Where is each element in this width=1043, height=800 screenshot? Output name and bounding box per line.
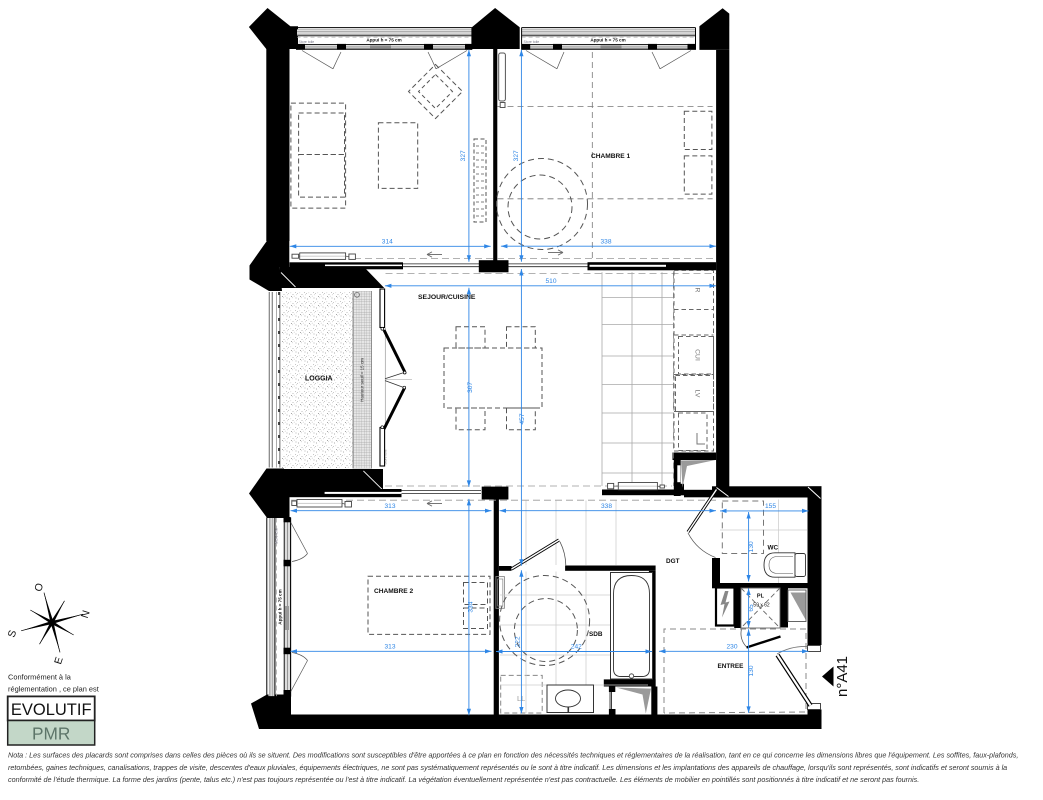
svg-text:SDB: SDB — [589, 631, 603, 638]
svg-text:222: 222 — [515, 636, 522, 647]
svg-text:510: 510 — [545, 278, 556, 285]
svg-text:Appui h = 75 cm: Appui h = 75 cm — [590, 38, 625, 43]
svg-text:327: 327 — [513, 150, 520, 161]
svg-text:338: 338 — [600, 238, 611, 245]
svg-text:Nota : Les surfaces des placar: Nota : Les surfaces des placards sont co… — [8, 751, 1018, 760]
svg-text:Appui h = 75 cm: Appui h = 75 cm — [278, 589, 283, 624]
svg-text:230: 230 — [726, 644, 737, 651]
svg-text:N: N — [79, 609, 93, 620]
svg-text:Hauteur seuil ≈ 15 cm: Hauteur seuil ≈ 15 cm — [360, 358, 365, 402]
svg-text:307: 307 — [467, 382, 474, 393]
svg-text:LOGGIA: LOGGIA — [305, 375, 333, 382]
svg-text:314: 314 — [382, 239, 393, 246]
svg-text:CHAMBRE 2: CHAMBRE 2 — [374, 588, 414, 595]
svg-text:ENTREE: ENTREE — [718, 663, 745, 670]
svg-text:conformité de l'étude thermiqu: conformité de l'étude thermique. La form… — [8, 775, 919, 784]
svg-text:CHAMBRE 1: CHAMBRE 1 — [591, 153, 631, 160]
svg-text:242: 242 — [571, 644, 582, 651]
svg-text:65: 65 — [748, 604, 755, 612]
svg-text:E: E — [52, 656, 66, 666]
svg-text:130: 130 — [748, 541, 755, 552]
svg-text:S: S — [6, 629, 20, 639]
svg-text:PMR: PMR — [32, 724, 70, 744]
svg-text:59 x 62: 59 x 62 — [753, 603, 770, 609]
svg-text:Conformément à la: Conformément à la — [8, 673, 72, 682]
svg-text:O: O — [32, 582, 46, 593]
svg-text:457: 457 — [519, 413, 526, 424]
svg-text:R: R — [694, 288, 701, 293]
svg-text:SEJOUR/CUISINE: SEJOUR/CUISINE — [418, 294, 476, 301]
svg-text:réglementation , ce plan est: réglementation , ce plan est — [8, 685, 99, 694]
svg-text:313: 313 — [384, 644, 395, 651]
svg-text:327: 327 — [460, 150, 467, 161]
svg-text:313: 313 — [384, 503, 395, 510]
svg-text:155: 155 — [765, 503, 776, 510]
svg-text:PL: PL — [757, 594, 765, 600]
svg-text:n°A41: n°A41 — [834, 656, 851, 697]
svg-text:DGT: DGT — [666, 558, 680, 565]
svg-text:LV: LV — [694, 390, 701, 398]
svg-text:EVOLUTIF: EVOLUTIF — [11, 701, 92, 719]
svg-text:CUI: CUI — [694, 349, 701, 361]
svg-text:334: 334 — [467, 601, 474, 612]
svg-text:WC: WC — [768, 545, 779, 552]
svg-text:Appui h = 75 cm: Appui h = 75 cm — [366, 38, 401, 43]
svg-text:retombées, gaines techniques,: retombées, gaines techniques, canalisati… — [8, 763, 1007, 772]
svg-text:338: 338 — [601, 503, 612, 510]
svg-text:Store toile: Store toile — [275, 528, 279, 544]
svg-text:Store toile: Store toile — [524, 40, 540, 44]
svg-text:130: 130 — [748, 665, 755, 676]
svg-text:Store toile: Store toile — [299, 40, 315, 44]
